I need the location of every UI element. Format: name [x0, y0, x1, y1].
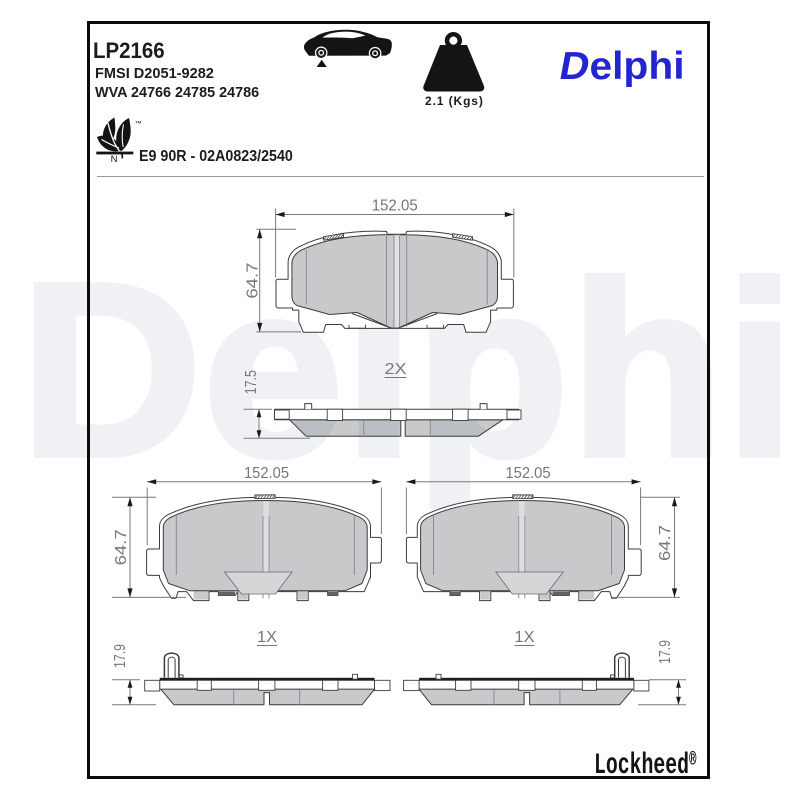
svg-text:64.7: 64.7 — [113, 529, 130, 565]
svg-text:17.5: 17.5 — [243, 370, 260, 394]
svg-text:2X: 2X — [385, 361, 407, 378]
svg-text:17.9: 17.9 — [112, 644, 129, 668]
svg-text:152.05: 152.05 — [506, 465, 551, 482]
svg-text:152.05: 152.05 — [372, 198, 418, 215]
svg-text:64.7: 64.7 — [657, 525, 674, 561]
svg-text:152.05: 152.05 — [244, 465, 289, 482]
svg-text:64.7: 64.7 — [245, 262, 262, 298]
svg-text:17.9: 17.9 — [657, 640, 674, 664]
svg-text:1X: 1X — [515, 629, 535, 646]
svg-text:1X: 1X — [257, 629, 277, 646]
